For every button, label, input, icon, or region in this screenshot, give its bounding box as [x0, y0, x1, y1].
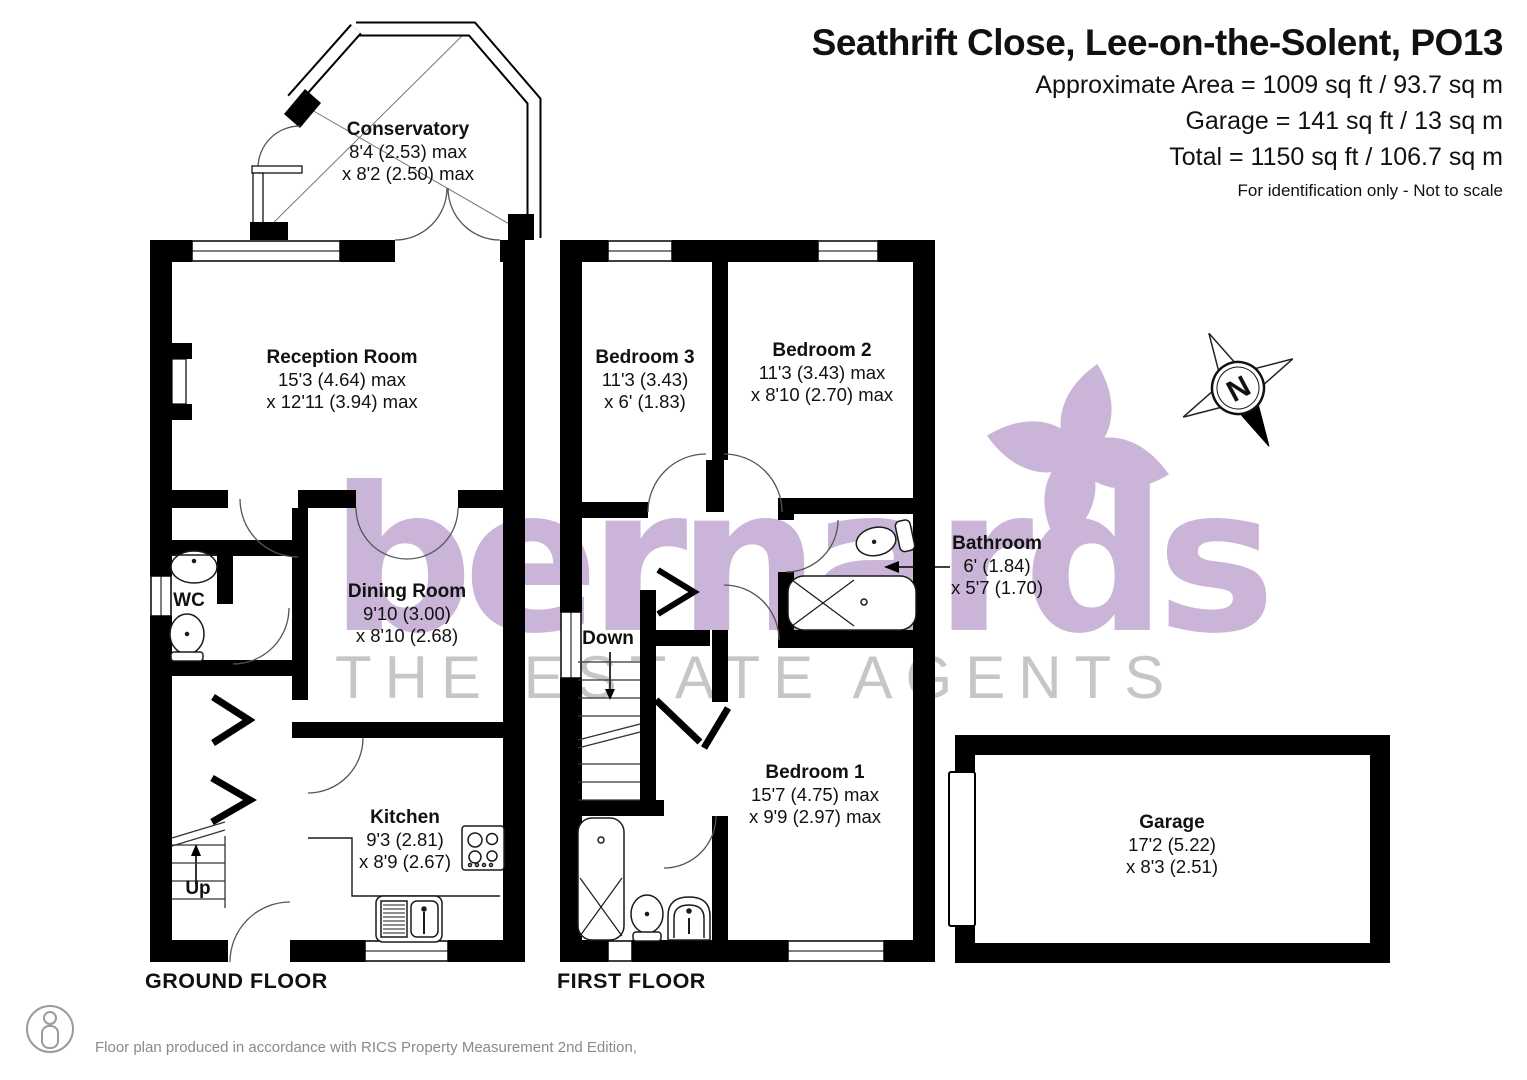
compass-rose: N: [1154, 304, 1324, 475]
door-arc: [724, 585, 779, 640]
ensuite-fixtures: [578, 818, 710, 941]
door-arc: [233, 608, 289, 664]
bathroom-label: Bathroom 6' (1.84) x 5'7 (1.70): [951, 533, 1043, 599]
toilet-icon: [631, 895, 663, 941]
french-door-arc: [395, 188, 447, 240]
hob-icon: [462, 826, 504, 870]
garage-area: Garage = 141 sq ft / 13 sq m: [812, 107, 1503, 136]
footer-line1: Floor plan produced in accordance with R…: [95, 1039, 775, 1057]
door-arc: [648, 454, 706, 512]
disclaimer: For identification only - Not to scale: [812, 181, 1503, 201]
kitchen-label: Kitchen 9'3 (2.81) x 8'9 (2.67): [359, 807, 451, 873]
kitchen-sink-icon: [376, 896, 442, 942]
dining-room-label: Dining Room 9'10 (3.00) x 8'10 (2.68): [348, 581, 466, 647]
cupboard-door-chevron: [213, 697, 249, 743]
fireplace-recess: [172, 359, 186, 404]
first-floor-label: FIRST FLOOR: [557, 969, 706, 994]
bedroom2-label: Bedroom 2 11'3 (3.43) max x 8'10 (2.70) …: [751, 340, 893, 406]
french-door-arc: [407, 508, 458, 559]
bath-icon: [788, 576, 916, 630]
toilet-icon: [853, 519, 915, 561]
stairs-down-label: Down: [582, 628, 634, 650]
door-arc: [786, 520, 838, 572]
up-arrow: [191, 844, 201, 856]
floorplan-page: bernards THE ESTATE AGENTS: [0, 0, 1527, 1080]
garage-door: [949, 772, 975, 926]
page-title: Seathrift Close, Lee-on-the-Solent, PO13: [812, 22, 1503, 64]
bath-icon: [578, 818, 624, 940]
garage-label: Garage 17'2 (5.22) x 8'3 (2.51): [1126, 812, 1218, 878]
bedroom3-label: Bedroom 3 11'3 (3.43) x 6' (1.83): [595, 347, 694, 413]
door-arc: [664, 816, 716, 868]
french-door-arc: [356, 508, 407, 559]
toilet-icon: [170, 614, 204, 661]
person-icon: [25, 1003, 75, 1055]
cupboard-doors: [212, 697, 250, 822]
conservatory-label: Conservatory 8'4 (2.53) max x 8'2 (2.50)…: [342, 119, 474, 185]
sink-icon: [668, 897, 710, 940]
cupboard-door-chevron: [212, 778, 250, 822]
open-door-leaf: [656, 700, 700, 742]
ground-floor-label: GROUND FLOOR: [145, 969, 328, 994]
footer: Floor plan produced in accordance with R…: [25, 1003, 775, 1080]
header: Seathrift Close, Lee-on-the-Solent, PO13…: [812, 0, 1503, 201]
door-arc: [230, 902, 290, 962]
footer-text: Floor plan produced in accordance with R…: [95, 1003, 775, 1080]
door-arc: [724, 454, 782, 512]
stairs-up-label: Up: [185, 878, 210, 900]
window: [608, 941, 632, 961]
door-arc: [258, 126, 300, 168]
reception-room-label: Reception Room 15'3 (4.64) max x 12'11 (…: [266, 347, 417, 413]
open-door-leaf: [704, 708, 728, 748]
wc-label: WC: [173, 590, 205, 612]
stairs-down: [578, 652, 640, 800]
bedroom1-label: Bedroom 1 15'7 (4.75) max x 9'9 (2.97) m…: [749, 762, 881, 828]
bathroom-fixtures: [788, 519, 916, 630]
open-door-chevron: [658, 570, 694, 614]
door-arc: [308, 738, 363, 793]
approx-area: Approximate Area = 1009 sq ft / 93.7 sq …: [812, 71, 1503, 100]
sink-icon: [171, 551, 217, 583]
total-area: Total = 1150 sq ft / 106.7 sq m: [812, 143, 1503, 172]
